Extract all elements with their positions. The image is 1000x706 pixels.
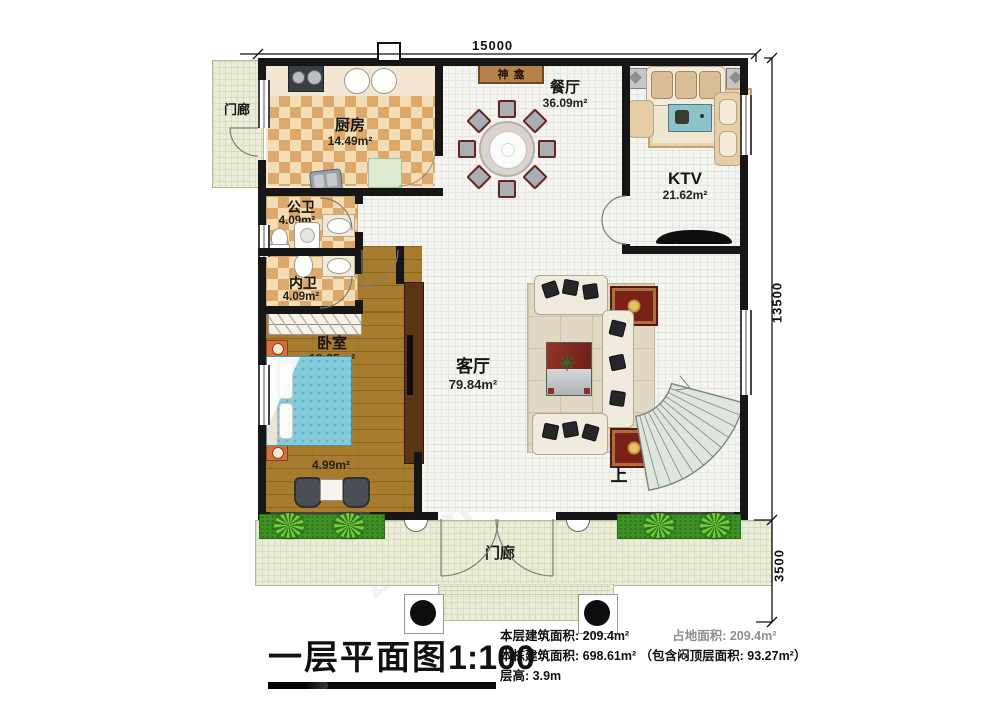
plant-icon	[700, 513, 730, 538]
dining-label: 餐厅	[530, 80, 600, 96]
bedroom-label: 卧室	[292, 336, 372, 352]
plant-icon: ✳	[558, 353, 576, 375]
living-sofa-top	[534, 275, 608, 315]
nook-table-icon	[320, 479, 343, 501]
living-sofa-bottom	[532, 413, 608, 455]
coffee-table-icon: ✳	[546, 342, 592, 396]
wall	[435, 66, 443, 156]
ktv-label: KTV	[650, 170, 720, 188]
pillow-icon	[581, 423, 600, 442]
wall	[622, 246, 748, 254]
dining-chair-icon	[498, 180, 516, 198]
stat-row-1: 本层建筑面积: 209.4m² 占地面积: 209.4m²	[500, 626, 806, 646]
stove-icon	[288, 64, 324, 92]
window	[740, 95, 752, 155]
window	[258, 365, 270, 425]
pillow-icon	[608, 319, 626, 337]
sitting-nook-area: 4.99m²	[296, 458, 366, 472]
wall	[414, 452, 422, 512]
stat-row-2: 本栋建筑面积: 698.61m² （包含闷顶层面积: 93.27m²）	[500, 646, 806, 666]
pillow-icon	[562, 421, 579, 438]
wall	[396, 246, 404, 284]
wall	[740, 395, 748, 520]
porch-bottom-label: 门廊	[470, 546, 530, 562]
column-icon	[584, 600, 610, 626]
stats-block: 本层建筑面积: 209.4m² 占地面积: 209.4m² 本栋建筑面积: 69…	[500, 626, 806, 686]
floor-area-value: 209.4m²	[583, 629, 630, 643]
sink-icon	[327, 218, 351, 234]
floor-area-label: 本层建筑面积:	[500, 629, 579, 643]
plant-icon	[274, 513, 304, 538]
ktv-table-icon	[668, 104, 712, 132]
floor-plan-page: z.com z.com z.com z.com 门廊 门廊 厨房 14.49m²…	[0, 0, 1000, 706]
dimension-bottom-right: 3500	[772, 544, 787, 588]
pillow-icon	[609, 390, 626, 407]
column-plinth	[404, 594, 444, 634]
building-area-value: 698.61m²	[583, 649, 637, 663]
closet-icon	[268, 313, 362, 335]
dimension-top: 15000	[472, 38, 513, 53]
sink-icon	[327, 258, 351, 274]
column-icon	[410, 600, 436, 626]
washing-machine-icon	[294, 222, 320, 250]
pillow-icon	[562, 279, 579, 296]
porch-left-label: 门廊	[214, 103, 260, 117]
building-area-label: 本栋建筑面积:	[500, 649, 579, 663]
stairs-up-label: 上	[604, 467, 634, 485]
living-label: 客厅	[428, 358, 518, 376]
chimney-box	[377, 42, 401, 62]
attic-note: （包含闷顶层面积: 93.27m²）	[640, 649, 807, 663]
porch-left-floor	[212, 60, 264, 188]
kitchen-area: 14.49m²	[310, 134, 390, 148]
bed-icon	[266, 356, 352, 446]
dining-chair-icon	[458, 140, 476, 158]
plant-icon	[644, 513, 674, 538]
living-area: 79.84m²	[428, 377, 518, 392]
pillow-icon	[541, 280, 560, 299]
stat-row-3: 层高: 3.9m	[500, 666, 806, 686]
spiral-staircase	[628, 352, 748, 502]
public-bath-label: 公卫	[272, 200, 330, 215]
wall	[266, 188, 443, 196]
land-area-label: 占地面积:	[672, 629, 726, 643]
nightstand-icon	[266, 340, 288, 357]
ktv-armchair	[628, 100, 654, 138]
height-label: 层高:	[500, 669, 529, 683]
wall	[258, 425, 266, 520]
page-title: 一层平面图	[268, 630, 448, 679]
plant-icon	[334, 513, 364, 538]
pillow-icon	[609, 354, 627, 372]
window	[740, 310, 752, 395]
nook-chair-icon	[342, 477, 370, 508]
kitchen-label: 厨房	[310, 118, 390, 134]
inner-bath-label: 内卫	[274, 276, 332, 291]
pillow-icon	[542, 423, 560, 441]
fridge-icon	[368, 158, 402, 188]
title-block: 一层平面图 1:100	[268, 630, 535, 679]
pillow-icon	[582, 283, 599, 300]
title-underline	[268, 682, 496, 689]
dining-area: 36.09m²	[530, 96, 600, 110]
wall	[258, 306, 363, 314]
wall	[740, 155, 748, 310]
wall	[258, 248, 363, 256]
land-area-value: 209.4m²	[730, 629, 777, 643]
inner-bath-area: 4.09m²	[272, 291, 330, 303]
kitchen-sink-bowl-icon	[344, 68, 370, 94]
shrine-label: 神龛	[498, 66, 530, 82]
wall	[355, 196, 363, 204]
bedroom-tv-icon	[407, 335, 413, 395]
ktv-sofa-right	[714, 92, 742, 166]
dining-chair-icon	[538, 140, 556, 158]
nook-chair-icon	[294, 477, 322, 508]
wall	[740, 58, 748, 95]
kitchen-sink-bowl-icon	[371, 68, 397, 94]
wall	[258, 58, 748, 66]
nightstand-icon	[266, 444, 288, 461]
bath-counter	[322, 254, 355, 277]
bath-counter	[322, 214, 355, 237]
wall	[258, 58, 266, 80]
wall	[258, 160, 266, 225]
wall	[622, 66, 630, 196]
window	[258, 80, 270, 128]
ktv-area: 21.62m²	[650, 188, 720, 202]
dining-table-icon	[479, 121, 535, 177]
dining-chair-icon	[498, 100, 516, 118]
height-value: 3.9m	[533, 669, 562, 683]
dimension-right: 13500	[770, 278, 785, 328]
